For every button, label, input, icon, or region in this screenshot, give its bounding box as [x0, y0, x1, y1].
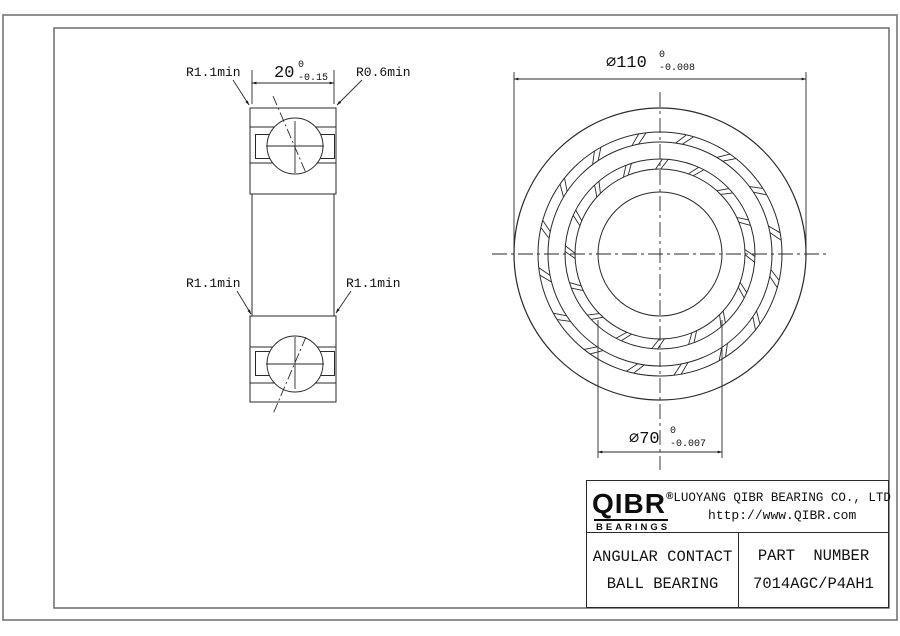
cage-pocket-tick [753, 317, 756, 330]
bore-tol-upper: 0 [670, 426, 676, 437]
cage-pocket-tick [739, 222, 751, 225]
cage-pocket-tick [573, 215, 580, 225]
product-line2: BALL BEARING [607, 575, 719, 593]
cage-pocket-tick [674, 364, 682, 375]
cage-pocket-tick [745, 255, 755, 263]
cage-pocket-tick [616, 332, 627, 338]
cage-pocket-tick [717, 154, 730, 157]
part-number-label: PART NUMBER [758, 547, 869, 565]
cage-pocket-tick [626, 364, 637, 372]
part-number-cell: PART NUMBER 7014AGC/P4AH1 [739, 533, 888, 607]
cage-pocket-tick [723, 159, 736, 162]
cage-pocket-tick [587, 314, 599, 315]
company-website: http://www.QIBR.com [708, 508, 856, 523]
title-block: QIBR® BEARINGS LUOYANG QIBR BEARING CO.,… [586, 480, 889, 608]
cage-pocket-tick [623, 165, 626, 177]
product-line1: ANGULAR CONTACT [593, 548, 733, 566]
cage-pocket-tick [595, 185, 597, 197]
width-tol-upper: 0 [298, 60, 304, 71]
cage-pocket-tick [749, 187, 762, 189]
bore-value: ⌀70 [629, 430, 660, 449]
od-tol-lower: -0.008 [659, 63, 695, 74]
logo-wordmark: QIBR® [592, 483, 673, 518]
cage-pocket-tick [541, 228, 549, 239]
cage-pocket-tick [628, 163, 631, 175]
cage-pocket-tick [689, 333, 692, 345]
cage-pocket-tick [539, 268, 550, 276]
brand-logo: QIBR® BEARINGS [587, 481, 673, 532]
cage-pocket-tick [726, 343, 728, 356]
radius-callout-mid-right: R1.1min [336, 276, 401, 313]
title-block-header-row: QIBR® BEARINGS LUOYANG QIBR BEARING CO.,… [587, 481, 888, 533]
width-dimension: 20 0 -0.15 [252, 60, 334, 104]
width-tol-lower: -0.15 [298, 73, 328, 84]
cage-pocket-tick [688, 167, 698, 174]
radius-callout-top-left: R1.1min [186, 65, 249, 105]
cage-pocket-tick [737, 217, 749, 220]
cage-pocket-tick [560, 184, 563, 197]
radius-label: R1.1min [186, 65, 241, 80]
cage-pocket-tick [565, 246, 575, 254]
radius-callout-top-right: R0.6min [337, 65, 411, 105]
drawing-sheet: 20 0 -0.15 R1.1min R0.6min R1.1min R1.1m… [0, 0, 900, 636]
cage-pocket-tick [693, 170, 704, 176]
cage-pocket-tick [717, 189, 729, 191]
cage-pocket-tick [584, 347, 597, 350]
company-name: LUOYANG QIBR BEARING CO., LTD [673, 491, 891, 505]
cage-pocket-tick [661, 159, 669, 169]
radius-callout-mid-left: R1.1min [186, 276, 251, 314]
cage-pocket-tick [676, 135, 687, 143]
od-tol-upper: 0 [659, 50, 665, 61]
logo-subtitle: BEARINGS [596, 522, 673, 533]
cage-pocket-tick [639, 133, 647, 144]
front-view: ⌀110 0 -0.008 ⌀70 0 -0.007 [492, 50, 826, 470]
logo-divider [594, 519, 668, 521]
cross-section-view [250, 96, 336, 414]
cage-pocket-tick [682, 137, 693, 145]
cage-pocket-tick [770, 233, 781, 241]
bore-tol-lower: -0.007 [670, 439, 706, 450]
cage-pocket-tick [723, 311, 725, 323]
part-number-value: 7014AGC/P4AH1 [753, 575, 874, 593]
od-value: ⌀110 [606, 54, 647, 73]
cage-pocket-tick [738, 287, 744, 298]
cage-pocket-tick [569, 283, 581, 286]
cage-pocket-tick [652, 339, 660, 349]
cage-pocket-tick [571, 288, 583, 291]
radius-label: R1.1min [346, 276, 401, 291]
width-value: 20 [274, 64, 294, 83]
product-description: ANGULAR CONTACT BALL BEARING [587, 533, 739, 607]
registered-trademark-icon: ® [666, 491, 673, 502]
cage-pocket-tick [576, 210, 582, 221]
cage-pocket-tick [590, 351, 603, 354]
cage-pocket-tick [591, 317, 603, 319]
radius-label: R1.1min [186, 276, 241, 291]
cage-pocket-tick [557, 320, 570, 322]
radius-label: R0.6min [356, 65, 411, 80]
cage-pocket-tick [721, 193, 733, 194]
logo-text: QIBR [592, 488, 666, 519]
cage-pocket-tick [593, 151, 595, 164]
cage-pocket-tick [599, 181, 600, 193]
cage-pocket-tick [770, 276, 778, 287]
cage-pocket-tick [565, 178, 568, 191]
cage-pocket-tick [543, 220, 551, 231]
cage-pocket-tick [694, 331, 697, 343]
cage-pocket-tick [634, 365, 645, 373]
title-block-detail-row: ANGULAR CONTACT BALL BEARING PART NUMBER… [587, 533, 888, 607]
cage-pocket-tick [771, 270, 779, 281]
cage-pocket-tick [621, 334, 631, 341]
cage-pocket-tick [740, 282, 747, 292]
cage-pocket-tick [720, 315, 721, 327]
company-info: LUOYANG QIBR BEARING CO., LTD http://www… [673, 481, 895, 532]
cage-pocket-tick [757, 311, 760, 324]
